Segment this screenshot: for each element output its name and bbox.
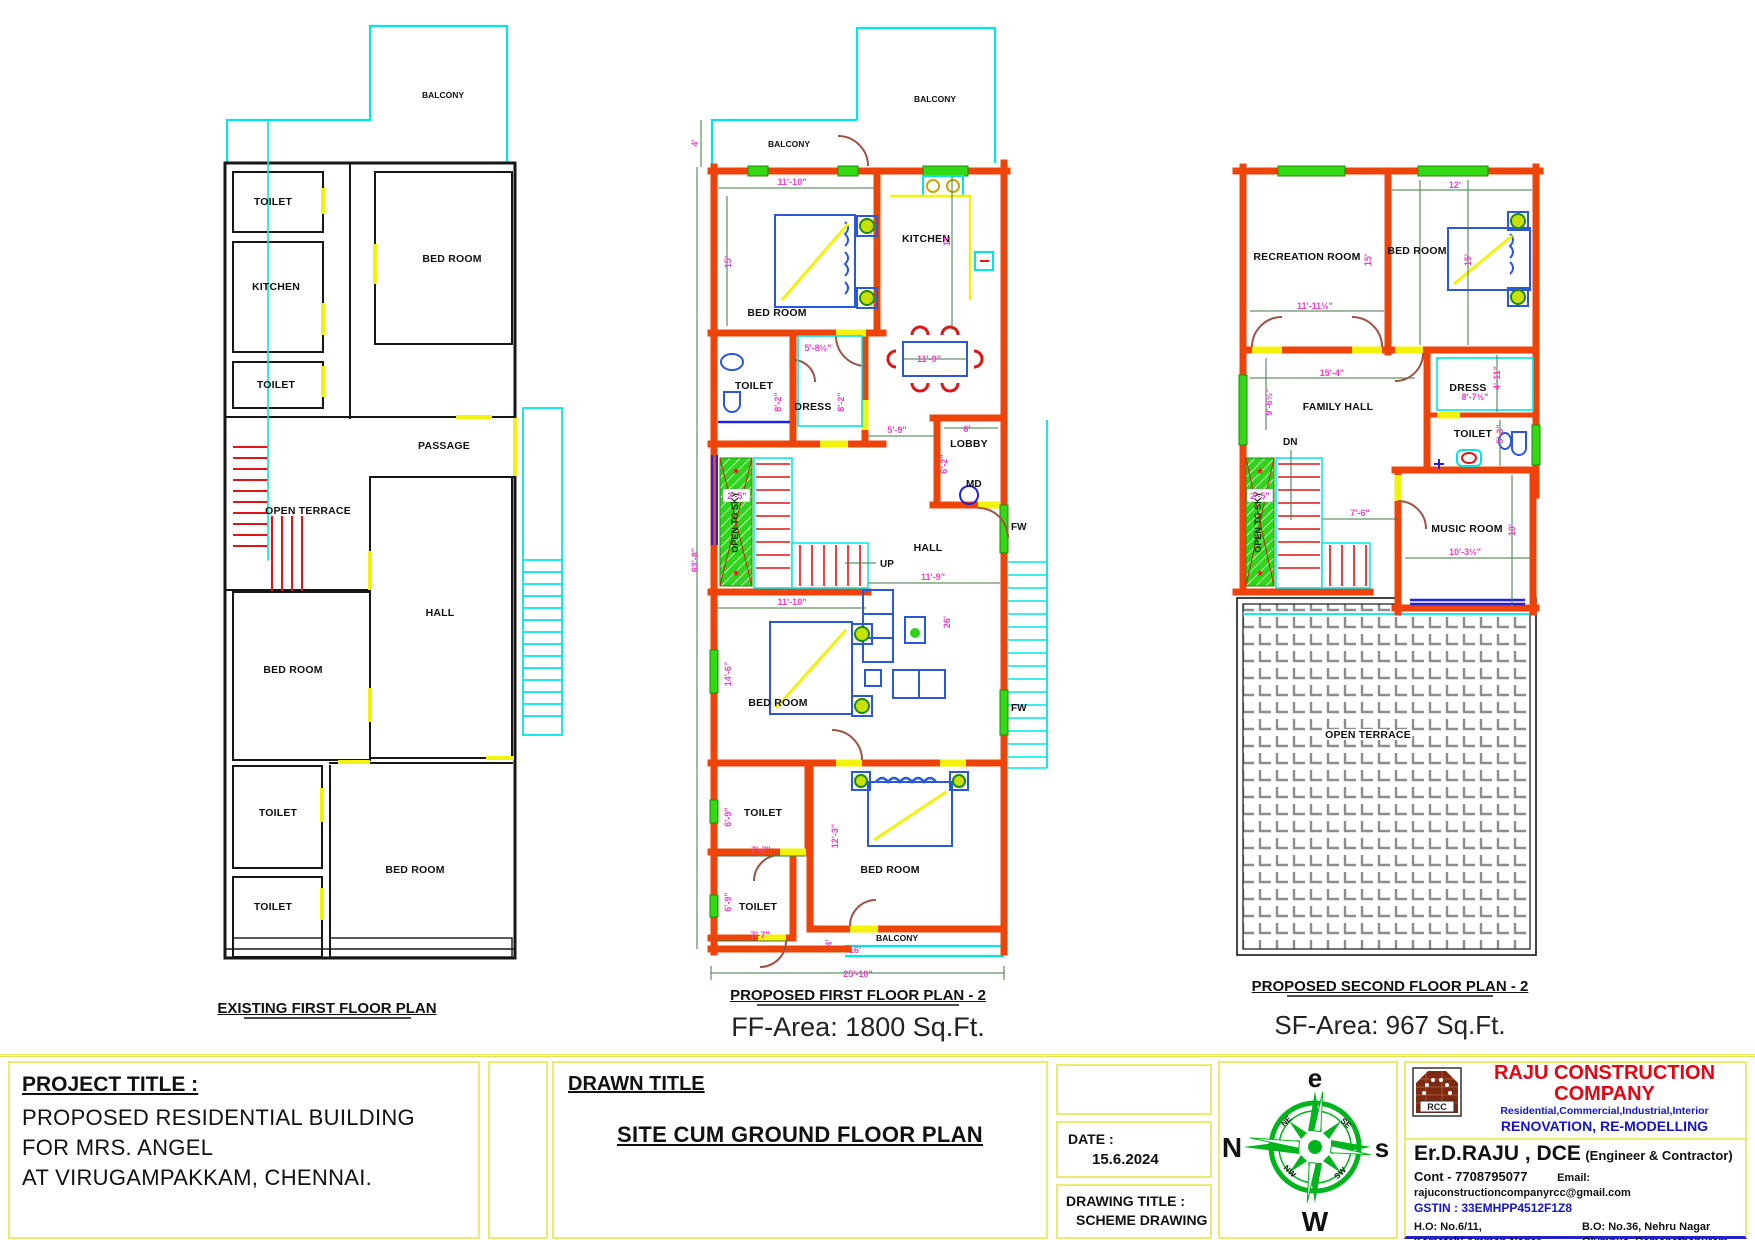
date-value: 15.6.2024 xyxy=(1092,1151,1210,1168)
dim: 11' xyxy=(942,234,952,246)
project-line: PROPOSED RESIDENTIAL BUILDING xyxy=(22,1105,478,1131)
dim: 15' xyxy=(723,256,733,268)
drawing-sheet: BALCONY TOILET KITCHEN TOILET BED ROOM P… xyxy=(0,0,1755,1240)
dim: 11'-10" xyxy=(778,177,807,187)
dim: 8'-7½" xyxy=(1462,392,1489,402)
ff-staircase: * * xyxy=(720,458,876,588)
dim: 11'-9" xyxy=(917,354,941,364)
drawing-title-label: DRAWING TITLE : xyxy=(1066,1193,1210,1209)
engineer-name: Er.D.RAJU , DCE xyxy=(1414,1142,1581,1165)
room-label: BED ROOM xyxy=(385,864,444,876)
sf-plan-title: PROPOSED SECOND FLOOR PLAN - 2 xyxy=(1240,978,1540,995)
title-block: PROJECT TITLE : PROPOSED RESIDENTIAL BUI… xyxy=(0,1054,1755,1240)
room-label: KITCHEN xyxy=(252,281,300,293)
project-title-cell: PROJECT TITLE : PROPOSED RESIDENTIAL BUI… xyxy=(8,1061,480,1239)
existing-plan-title: EXISTING FIRST FLOOR PLAN xyxy=(177,1000,477,1017)
drawn-title-cell: DRAWN TITLE SITE CUM GROUND FLOOR PLAN xyxy=(552,1061,1048,1239)
dim: 6'-9" xyxy=(723,807,733,826)
room-label: BED ROOM xyxy=(748,697,807,709)
date-label: DATE : xyxy=(1068,1131,1210,1147)
room-label: RECREATION ROOM xyxy=(1253,251,1360,263)
room-label: BED ROOM xyxy=(422,253,481,265)
svg-text:*: * xyxy=(1257,465,1263,481)
dim: 25'-10" xyxy=(843,969,872,979)
dim: 6'-9" xyxy=(723,892,733,911)
plan-existing: BALCONY TOILET KITCHEN TOILET BED ROOM P… xyxy=(225,26,562,958)
dim: 6'-2" xyxy=(939,454,949,473)
dim: 5'-3" xyxy=(1495,424,1505,443)
existing-ext-stair xyxy=(523,408,562,735)
dim: 2'-5" xyxy=(1250,491,1269,501)
room-label: UP xyxy=(880,559,894,570)
dim: 14'-6" xyxy=(723,662,733,686)
plan-second: * * xyxy=(1236,166,1540,955)
room-label: BALCONY xyxy=(422,90,464,100)
room-label: TOILET xyxy=(257,379,296,391)
compass-left-letter: N xyxy=(1222,1132,1242,1163)
room-label: HALL xyxy=(914,542,943,554)
dim: 7'-6" xyxy=(1350,508,1369,518)
dim: 10'-3½" xyxy=(1449,547,1481,557)
room-label: BED ROOM xyxy=(860,864,919,876)
company-gstin: GSTIN : 33EMHPP4512F1Z8 xyxy=(1414,1201,1737,1215)
dim: 4' xyxy=(824,939,834,946)
dim: 16' xyxy=(849,945,861,955)
revision-cell xyxy=(1056,1064,1212,1115)
fw-label: FW xyxy=(1011,522,1027,533)
room-label: LOBBY xyxy=(950,438,988,450)
room-label: BED ROOM xyxy=(1387,245,1446,257)
room-label: MUSIC ROOM xyxy=(1431,523,1502,535)
date-cell: DATE : 15.6.2024 xyxy=(1056,1121,1212,1178)
room-label: BED ROOM xyxy=(263,664,322,676)
compass-cell: NE SE SW NW e N s W xyxy=(1218,1061,1398,1239)
company-contact: Cont - 7708795077 xyxy=(1414,1169,1527,1184)
room-label: MD xyxy=(966,479,982,490)
dim: 8'-2" xyxy=(836,392,846,411)
svg-text:*: * xyxy=(1257,567,1263,583)
svg-text:*: * xyxy=(733,567,739,583)
dim: 7'-7" xyxy=(751,845,770,855)
dim: 11'-10" xyxy=(778,597,807,607)
dim: 2'-5" xyxy=(727,491,746,501)
project-line: AT VIRUGAMPAKKAM, CHENNAI. xyxy=(22,1165,478,1191)
spacer-cell xyxy=(488,1061,548,1239)
dim: 26' xyxy=(942,616,952,628)
company-tagline: Residential,Commercial,Industrial,Interi… xyxy=(1464,1105,1745,1118)
ff-ext-stair xyxy=(1008,562,1047,768)
room-label: HALL xyxy=(426,607,455,619)
dim: 5'-8½" xyxy=(805,343,832,353)
fw-label: FW xyxy=(1011,703,1027,714)
floor-plans-svg: BALCONY TOILET KITCHEN TOILET BED ROOM P… xyxy=(0,0,1755,1056)
room-label: BALCONY xyxy=(768,139,810,149)
room-label: DRESS xyxy=(794,401,831,413)
dim: 7'-7" xyxy=(750,930,769,940)
dim: 15'-4" xyxy=(1320,368,1344,378)
compass-top-letter: e xyxy=(1308,1063,1322,1093)
compass-right-letter: s xyxy=(1375,1133,1389,1163)
ff-plan-title: PROPOSED FIRST FLOOR PLAN - 2 xyxy=(708,987,1008,1004)
room-label: BED ROOM xyxy=(747,307,806,319)
sf-open-terrace xyxy=(1237,598,1536,955)
room-label: OPEN TERRACE xyxy=(265,505,351,517)
dim: 6' xyxy=(963,424,970,434)
dim: 63'-8" xyxy=(690,548,700,572)
engineer-title: (Engineer & Contractor) xyxy=(1585,1148,1732,1163)
room-label: DN xyxy=(1283,437,1297,448)
room-label: TOILET xyxy=(1454,428,1493,440)
room-label: TOILET xyxy=(254,901,293,913)
dim: 8'-2" xyxy=(773,392,783,411)
company-logo-text: RCC xyxy=(1427,1102,1447,1112)
drawn-title-text: SITE CUM GROUND FLOOR PLAN xyxy=(554,1122,1046,1148)
sf-area-text: SF-Area: 967 Sq.Ft. xyxy=(1240,1010,1540,1041)
drawing-title-value: SCHEME DRAWING xyxy=(1076,1212,1210,1228)
room-label: PASSAGE xyxy=(418,440,470,452)
dim: 15' xyxy=(1463,254,1473,266)
room-label: BALCONY xyxy=(914,94,956,104)
room-label: TOILET xyxy=(254,196,293,208)
plan-first: * * xyxy=(690,28,1047,980)
company-logo: RCC xyxy=(1412,1067,1462,1117)
drawing-title-cell: DRAWING TITLE : SCHEME DRAWING xyxy=(1056,1184,1212,1239)
compass-rose: NE SE SW NW e N s W xyxy=(1220,1063,1396,1237)
dim: 12'-3" xyxy=(830,824,840,848)
dim: 9'-6½" xyxy=(1264,389,1274,416)
dim: 15' xyxy=(1363,254,1373,266)
compass-bottom-letter: W xyxy=(1302,1206,1329,1237)
room-label: TOILET xyxy=(259,807,298,819)
company-ho-address: H.O: No.6/11, Kamatchi Amman Nagar, Mang… xyxy=(1414,1220,1582,1240)
room-label: OPEN TERRACE xyxy=(1325,729,1411,741)
dim: 11'-9" xyxy=(921,572,945,582)
room-label: TOILET xyxy=(744,807,783,819)
company-name: RAJU CONSTRUCTION COMPANY xyxy=(1464,1063,1745,1105)
company-cell: RCC RAJU CONSTRUCTION COMPANY Residentia… xyxy=(1404,1061,1747,1239)
company-subtitle: RENOVATION, RE-MODELLING xyxy=(1464,1118,1745,1135)
room-label: TOILET xyxy=(739,901,778,913)
room-label: TOILET xyxy=(735,380,774,392)
dim: 5'-9" xyxy=(887,425,906,435)
project-title-label: PROJECT TITLE : xyxy=(22,1073,478,1097)
drawn-title-label: DRAWN TITLE xyxy=(568,1073,1046,1096)
existing-balcony-outline xyxy=(227,26,507,163)
room-label: FAMILY HALL xyxy=(1303,401,1374,413)
dim: 4' xyxy=(690,139,700,146)
dim: 11'-11½" xyxy=(1297,301,1333,311)
dim: 10' xyxy=(1507,524,1517,536)
company-bo-address: B.O: No.36, Nehru Nagar Olympus, Ramanat… xyxy=(1582,1220,1731,1240)
room-label: BALCONY xyxy=(876,933,918,943)
svg-text:*: * xyxy=(733,465,739,481)
dim: 12' xyxy=(1449,180,1461,190)
ff-area-text: FF-Area: 1800 Sq.Ft. xyxy=(708,1012,1008,1043)
dim: 4'-11" xyxy=(1492,366,1502,390)
project-line: FOR MRS. ANGEL xyxy=(22,1135,478,1161)
